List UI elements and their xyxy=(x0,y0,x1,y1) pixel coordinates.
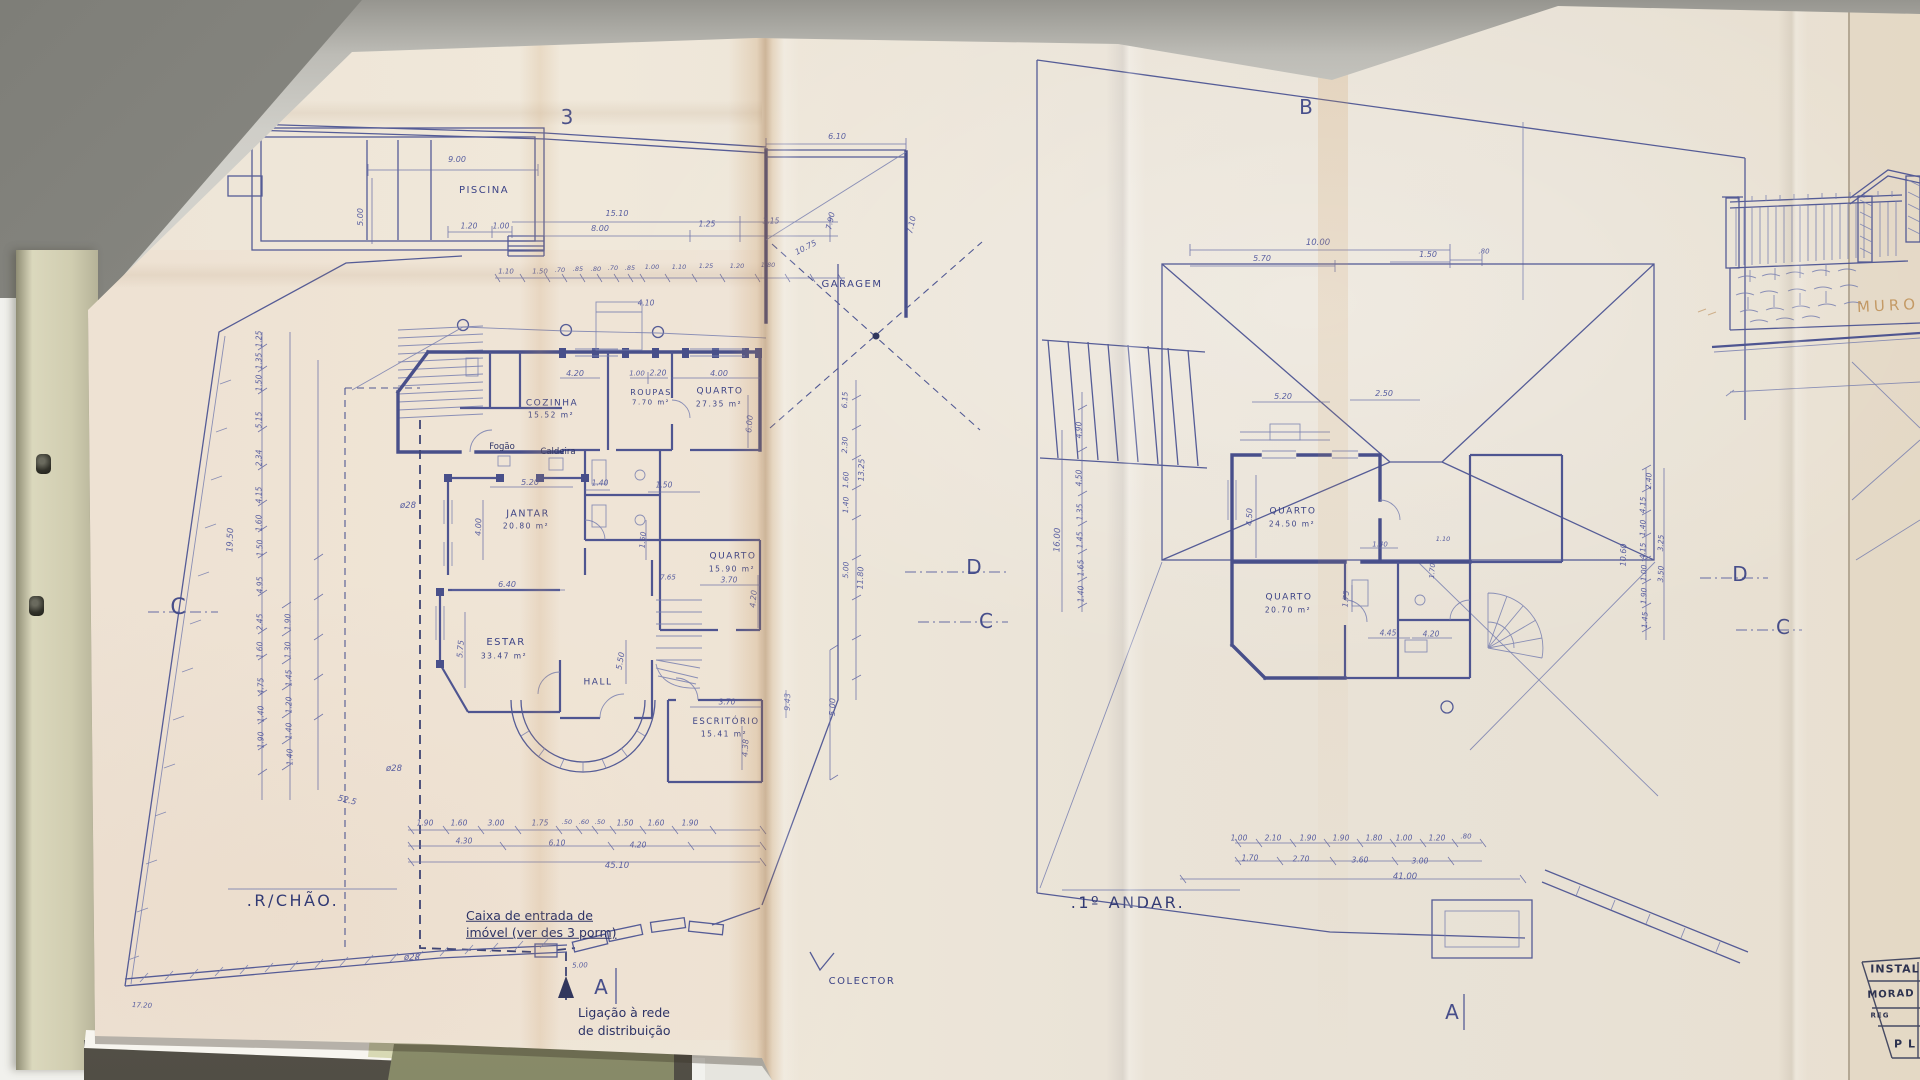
room-quarto-1-area: 27.35 m² xyxy=(696,400,742,408)
binder-rivet xyxy=(29,596,44,616)
dim-label: 4.45 xyxy=(1380,629,1397,637)
dim-label: 10.00 xyxy=(1306,239,1330,248)
dim-label: 1.00 xyxy=(493,222,510,230)
dim-label: 4.95 xyxy=(256,577,264,594)
dim-label: 5.20 xyxy=(521,479,539,487)
dim-label: 1.45 xyxy=(1076,532,1084,549)
dim-label: 1.00 xyxy=(1640,565,1648,582)
binder-folder-edge xyxy=(16,250,98,1070)
section-letter-c-mid: C xyxy=(979,611,993,631)
dim-label: 1.50 xyxy=(1419,251,1437,259)
dim-label: 1.45 xyxy=(1641,612,1649,629)
room-estar-area: 33.47 m² xyxy=(481,652,527,660)
dim-label: 1.00 xyxy=(629,371,645,378)
dim-label: 5.00 xyxy=(829,698,838,716)
room-quarto-1: QUARTO xyxy=(696,388,743,397)
dim-label: 4.15 xyxy=(1639,543,1647,560)
dim-label: 1.90 xyxy=(1333,834,1350,842)
dim-label: 2.10 xyxy=(1265,834,1282,842)
dim-label: 1.90 xyxy=(417,819,434,827)
dim-label: 4.30 xyxy=(456,837,473,845)
note-ligacao-line1: Ligação à rede xyxy=(578,1007,670,1020)
plan-title-ground-floor: .R/CHÃO. xyxy=(247,893,340,909)
pipe-diameter: ø28 xyxy=(404,954,420,963)
dim-label: 1.65 xyxy=(1077,560,1085,577)
dim-label: 6.15 xyxy=(841,392,849,409)
dim-label: 4.50 xyxy=(1075,470,1083,487)
dim-label: 1.35 xyxy=(255,353,263,370)
room-roupas: ROUPAS xyxy=(630,389,672,397)
dim-label: 2.30 xyxy=(841,437,849,454)
dim-label: 2.70 xyxy=(1293,855,1310,863)
dim-label: 1.40 xyxy=(1639,520,1647,537)
dim-label: 1.00 xyxy=(1231,834,1248,842)
room-ff-quarto-2-area: 20.70 m² xyxy=(1265,606,1311,614)
dim-label: 5.20 xyxy=(1274,393,1292,401)
dim-label: 1.90 xyxy=(284,614,292,631)
pipe-diameter: ø28 xyxy=(386,765,402,774)
dim-label: 17.20 xyxy=(132,1002,152,1010)
dim-label: 6.40 xyxy=(498,581,516,589)
dim-label: 4.50 xyxy=(1246,508,1255,526)
dim-label: 1.40 xyxy=(286,749,294,766)
dim-label: 1.50 xyxy=(656,481,673,489)
dim-label: .50 xyxy=(562,819,572,826)
section-letter-a-left: A xyxy=(594,977,608,997)
dim-label: 1.35 xyxy=(1076,504,1084,521)
room-cozinha: COZINHA xyxy=(526,400,578,409)
room-quarto-2-area: 15.90 m² xyxy=(709,565,755,573)
dim-label: .80 xyxy=(1478,249,1489,256)
room-quarto-2: QUARTO xyxy=(709,553,756,562)
label-muro: MURO xyxy=(1857,297,1920,315)
dim-label: 1.80 xyxy=(761,262,775,269)
dim-label: 1.60 xyxy=(842,472,850,489)
dim-label: 1.50 xyxy=(256,540,264,557)
ground-floor-plan xyxy=(125,124,1008,1004)
dim-label: 13.25 xyxy=(858,458,867,481)
dim-label: 1.40 xyxy=(1372,542,1388,549)
dim-label: 1.40 xyxy=(592,479,609,487)
dim-label: 1.60 xyxy=(256,642,264,659)
dim-label: 4.90 xyxy=(1075,422,1083,439)
note-caixa-line1: Caixa de entrada de xyxy=(466,910,593,923)
dim-label: 1.00 xyxy=(1396,834,1413,842)
dim-label: 1.80 xyxy=(1366,834,1383,842)
dim-label: 1.10 xyxy=(1436,536,1450,543)
dim-label: 45.10 xyxy=(605,862,629,871)
dim-label: 8.00 xyxy=(591,225,609,233)
dim-label: 1.90 xyxy=(1640,588,1648,605)
room-jantar-area: 20.80 m² xyxy=(503,522,549,530)
dim-label: 1.75 xyxy=(532,819,549,827)
section-letter-b: B xyxy=(1299,97,1313,117)
dim-label: 1.25 xyxy=(255,331,263,348)
dim-label: .80 xyxy=(1460,834,1471,841)
dim-label: 1.60 xyxy=(648,819,665,827)
fold-crease-horizontal xyxy=(88,262,762,288)
blueprint-drawing xyxy=(0,0,1920,1080)
section-letter-a-right: A xyxy=(1445,1002,1459,1022)
room-estar: ESTAR xyxy=(486,638,525,648)
dim-label: 2.40 xyxy=(1645,473,1653,490)
dim-label: 1.20 xyxy=(1429,834,1446,842)
dim-label: 3.25 xyxy=(1657,535,1665,552)
room-cozinha-area: 15.52 m² xyxy=(528,411,574,419)
dim-label: 3.15 xyxy=(763,217,780,225)
dim-label: 4.10 xyxy=(638,299,655,307)
room-ff-quarto-2: QUARTO xyxy=(1265,594,1312,603)
dim-label: 16.00 xyxy=(1053,528,1062,553)
photo-of-blueprint: 3BCDCDCAA.R/CHÃO..1º ANDAR.PISCINAGARAGE… xyxy=(0,0,1920,1080)
dim-label: 1.70 xyxy=(1242,854,1259,862)
dim-label: 4.00 xyxy=(475,518,484,536)
dim-label: 6.00 xyxy=(745,415,755,433)
title-block-instal: INSTAL xyxy=(1870,964,1919,975)
dim-label: 9.43 xyxy=(784,693,793,711)
room-hall: HALL xyxy=(584,679,613,688)
dim-label: 7.65 xyxy=(660,575,676,582)
dim-label: 19.50 xyxy=(226,528,235,553)
blueprint-sheet: 3BCDCDCAA.R/CHÃO..1º ANDAR.PISCINAGARAGE… xyxy=(0,0,1920,1080)
room-ff-quarto-1-area: 24.50 m² xyxy=(1269,520,1315,528)
note-caixa-line2: imóvel (ver des 3 porm) xyxy=(466,927,617,940)
section-letter-d-mid: D xyxy=(966,557,981,577)
room-ff-quarto-1: QUARTO xyxy=(1269,508,1316,517)
pipe-diameter: ø28 xyxy=(400,502,416,511)
dim-label: 6.10 xyxy=(828,133,846,141)
dim-label: 1.45 xyxy=(285,670,293,687)
dim-label: 41.00 xyxy=(1393,873,1417,882)
dim-label: 1.40 xyxy=(842,497,850,514)
dim-label: 1.30 xyxy=(284,642,292,659)
dim-label: 1.90 xyxy=(682,819,699,827)
dim-label: 3.00 xyxy=(1412,857,1429,865)
room-jantar: JANTAR xyxy=(506,509,549,519)
dim-label: 2.34 xyxy=(255,450,263,467)
dim-label: 1.90 xyxy=(257,732,265,749)
dim-label: 2.20 xyxy=(650,369,667,377)
room-garagem: GARAGEM xyxy=(822,280,883,290)
dim-label: 1.60 xyxy=(255,515,263,532)
dim-label: 10.60 xyxy=(1620,543,1629,566)
dim-label: 4.15 xyxy=(1639,497,1647,514)
title-block-pl: P L xyxy=(1894,1039,1916,1050)
dim-label: 6.10 xyxy=(549,839,566,847)
dim-label: 1.40 xyxy=(1077,586,1085,603)
dim-label: 4.20 xyxy=(630,841,647,849)
dim-label: 5.70 xyxy=(1253,255,1271,263)
room-piscina: PISCINA xyxy=(459,186,509,196)
dim-label: 3.00 xyxy=(488,819,505,827)
dim-label: 1.75 xyxy=(1342,590,1351,607)
dim-label: 1.20 xyxy=(461,222,478,230)
dim-label: 3.70 xyxy=(721,576,738,584)
dim-label: 11.80 xyxy=(857,566,866,589)
dim-label: 15.10 xyxy=(606,210,629,218)
dim-label: 5.00 xyxy=(842,562,850,579)
dim-label: 4.38 xyxy=(742,739,751,757)
dim-label: 1.20 xyxy=(285,697,293,714)
section-letter-d-right: D xyxy=(1732,564,1747,584)
dim-label: 2.45 xyxy=(256,614,264,631)
dim-label: 4.20 xyxy=(566,370,584,378)
label-fogao: Fogão xyxy=(489,443,515,452)
dim-label: 1.50 xyxy=(639,531,648,548)
title-block-morad: MORAD xyxy=(1867,989,1915,1001)
dim-label: .50 xyxy=(595,819,605,826)
plan-title-first-floor: .1º ANDAR. xyxy=(1071,895,1185,911)
dim-label: 1.40 xyxy=(285,723,293,740)
wall-elevation xyxy=(1698,170,1920,560)
dim-label: 5.15 xyxy=(255,412,263,429)
dim-label: 5.00 xyxy=(357,208,365,226)
room-escritorio: ESCRITÓRIO xyxy=(692,718,759,727)
binder-rivet xyxy=(36,454,51,474)
dim-label: .60 xyxy=(579,819,589,826)
dim-label: 1.60 xyxy=(451,819,468,827)
dim-label: 9.00 xyxy=(448,156,466,164)
room-escritorio-area: 15.41 m² xyxy=(701,730,747,738)
label-colector: COLECTOR xyxy=(829,977,896,987)
label-caldeira: Caldeira xyxy=(540,448,575,457)
note-ligacao-line2: de distribuição xyxy=(578,1025,671,1038)
dim-label: 3.60 xyxy=(1352,856,1369,864)
dim-label: 1.50 xyxy=(617,819,634,827)
dim-label: 1.40 xyxy=(257,706,265,723)
dim-label: 3.50 xyxy=(1657,566,1665,583)
dim-label: 5.75 xyxy=(456,640,466,658)
dim-label: 1.25 xyxy=(699,220,716,228)
dim-label: 5.00 xyxy=(572,962,588,970)
dim-label: 4.20 xyxy=(749,590,759,608)
first-floor-plan xyxy=(1037,60,1802,1030)
dim-label: 1.70 xyxy=(1429,563,1437,579)
dim-label: 2.50 xyxy=(1375,390,1393,398)
room-roupas-area: 7.70 m² xyxy=(632,400,670,407)
section-letter-c-right: C xyxy=(1776,617,1790,637)
dim-label: 4.20 xyxy=(1423,630,1440,638)
dim-label: 1.50 xyxy=(255,375,263,392)
dim-label: 3.70 xyxy=(719,698,736,706)
title-block-reg: REG xyxy=(1871,1013,1890,1020)
dim-label: 4.15 xyxy=(255,487,263,504)
dim-label: 4.00 xyxy=(710,370,728,378)
section-letter-c-left: C xyxy=(170,597,185,619)
dim-label: 4.75 xyxy=(257,678,265,695)
dim-label: 1.90 xyxy=(1300,834,1317,842)
